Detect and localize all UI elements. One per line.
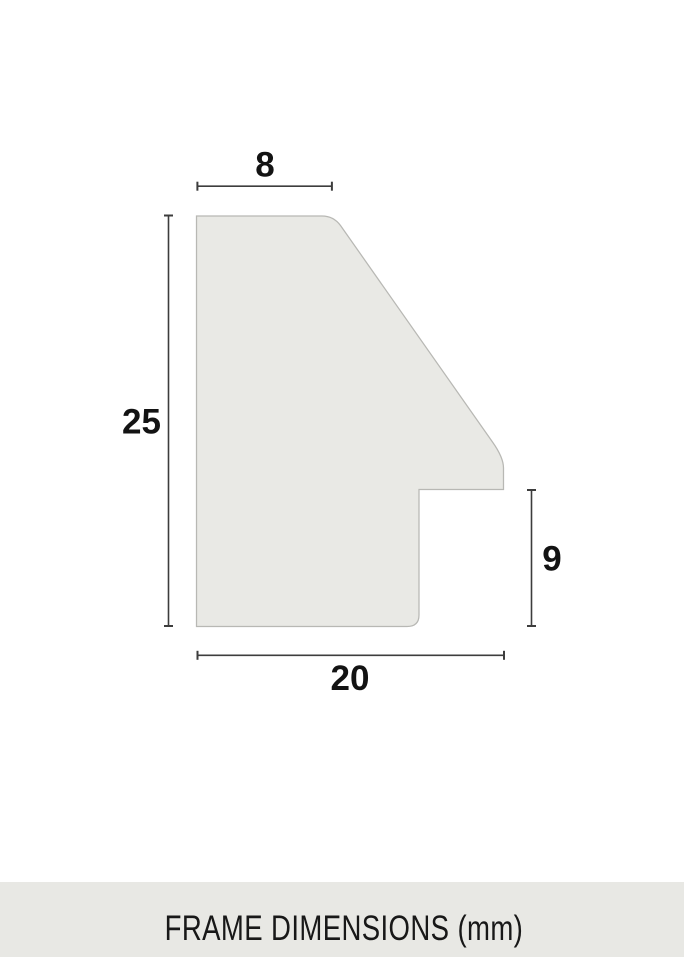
svg-text:9: 9 [542,540,561,579]
svg-text:8: 8 [255,146,274,185]
svg-text:25: 25 [122,403,161,442]
svg-text:20: 20 [331,659,370,698]
